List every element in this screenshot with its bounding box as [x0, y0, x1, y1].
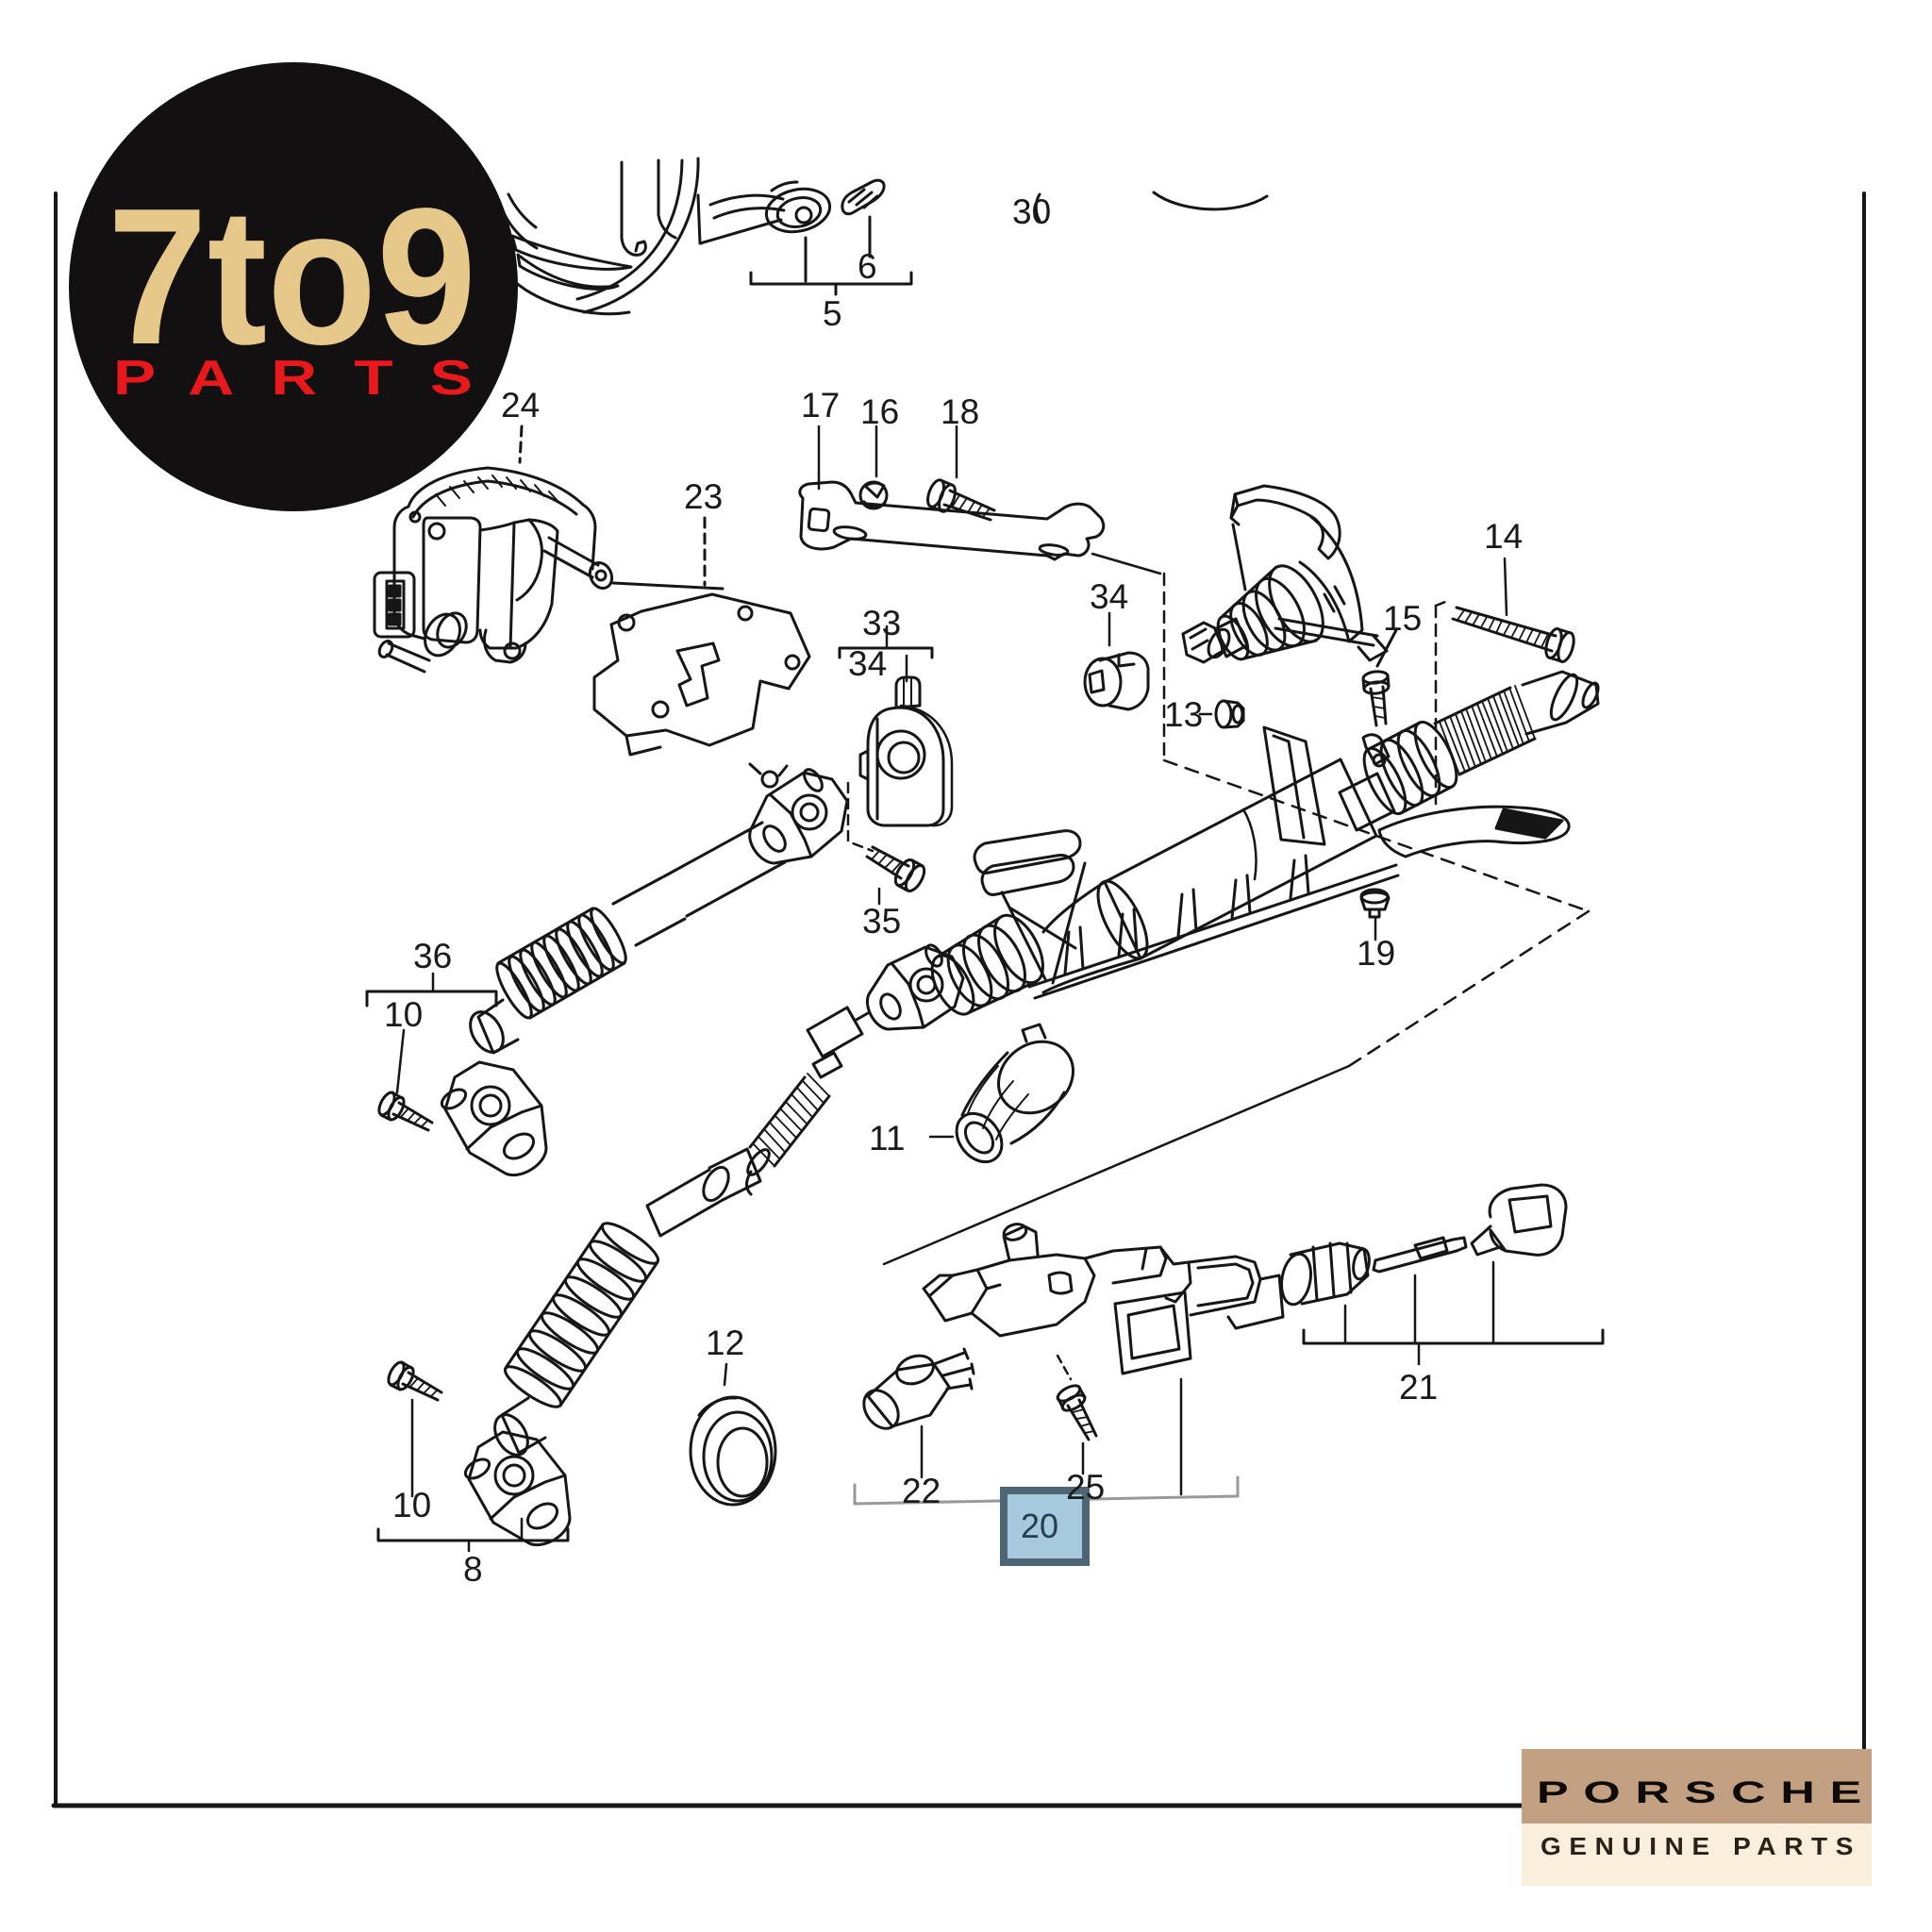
svg-text:8: 8 [463, 1550, 483, 1589]
svg-text:GENUINE PARTS: GENUINE PARTS [1541, 1832, 1861, 1860]
svg-text:11: 11 [869, 1119, 905, 1158]
svg-text:10: 10 [384, 995, 423, 1034]
svg-text:23: 23 [684, 477, 723, 516]
svg-text:PORSCHE: PORSCHE [1537, 1775, 1876, 1809]
svg-text:13: 13 [1164, 695, 1203, 734]
svg-text:17: 17 [801, 386, 840, 425]
svg-text:35: 35 [862, 902, 901, 941]
svg-text:34: 34 [1090, 577, 1128, 616]
svg-text:10: 10 [392, 1486, 431, 1524]
svg-text:22: 22 [902, 1472, 941, 1510]
svg-text:20: 20 [1021, 1507, 1058, 1545]
svg-text:15: 15 [1383, 599, 1422, 638]
svg-text:19: 19 [1357, 934, 1395, 973]
svg-text:34: 34 [848, 644, 887, 683]
svg-text:25: 25 [1066, 1468, 1105, 1507]
svg-text:30: 30 [1012, 192, 1051, 231]
svg-text:14: 14 [1484, 517, 1523, 556]
svg-text:21: 21 [1399, 1368, 1438, 1407]
svg-text:16: 16 [860, 392, 899, 431]
svg-text:5: 5 [823, 294, 842, 333]
svg-text:18: 18 [941, 392, 979, 431]
svg-text:36: 36 [413, 937, 452, 975]
svg-text:33: 33 [862, 604, 901, 642]
svg-text:12: 12 [706, 1324, 744, 1362]
svg-text:6: 6 [858, 247, 877, 286]
svg-text:PARTS: PARTS [113, 351, 509, 406]
